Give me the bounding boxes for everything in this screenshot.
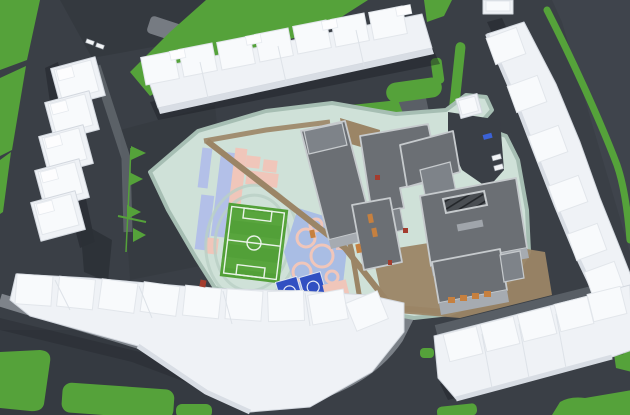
site-plan-svg: [0, 0, 630, 415]
site-plan-render: [0, 0, 630, 415]
